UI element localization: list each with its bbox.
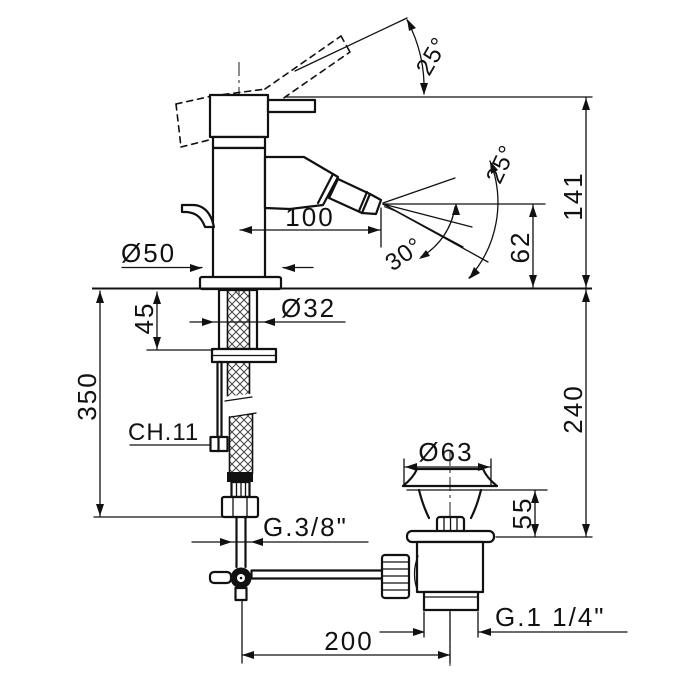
waste-waist [419, 490, 429, 518]
handle-angle-dimension: 25° [285, 18, 592, 97]
waste-thread-label: G.1 1/4" [495, 602, 606, 632]
hose-hex-nut [222, 497, 258, 517]
spray-height-62-label: 62 [505, 231, 535, 264]
depth-240-label: 240 [558, 384, 588, 433]
hose-length-label: 350 [72, 371, 102, 420]
waste-body [417, 542, 483, 592]
faucet-outline [182, 95, 381, 289]
waste-flange [407, 531, 494, 542]
head-ring [213, 137, 265, 148]
lever-handle [268, 100, 315, 112]
waste-thread-band [424, 592, 478, 610]
shank-diameter-label: Ø32 [281, 293, 336, 323]
shank-depth-dimension: 45 [129, 292, 213, 350]
inlet-thread-label: G.3/8" [263, 512, 348, 542]
spray-cone-angle-label: 30° [380, 232, 428, 277]
popup-rod-lever [182, 205, 214, 227]
linkage-stub [210, 572, 231, 583]
flex-hose-lower [230, 414, 253, 473]
rod-wrench-label: CH.11 [128, 419, 199, 446]
drawing-canvas: 25° 25° 30° 100 141 62 240 [0, 0, 700, 700]
flex-hose-upper [228, 290, 250, 349]
horizontal-linkage-rod [252, 571, 384, 579]
popup-rod [218, 362, 222, 437]
technical-drawing-bidet-mixer: 25° 25° 30° 100 141 62 240 [0, 0, 700, 700]
handle-angle-label: 25° [411, 32, 454, 80]
cartridge-head [210, 95, 268, 137]
linkage-tail [236, 588, 247, 600]
waste-height-label: 55 [507, 497, 537, 530]
faucet-column [213, 148, 265, 278]
spout-reach-label: 100 [285, 202, 334, 232]
shank-depth-label: 45 [129, 302, 159, 335]
height-141-label: 141 [558, 171, 588, 220]
rod-wrench-dimension: CH.11 [128, 419, 211, 446]
under-counter-assembly [210, 290, 383, 600]
waste-cap-diameter-label: Ø63 [418, 437, 473, 467]
shank-diameter-dimension: Ø32 [190, 293, 345, 326]
body-diameter-label: Ø50 [121, 238, 176, 268]
spray-tilt-angle-label: 25° [481, 141, 522, 188]
drain-offset-label: 200 [324, 626, 373, 656]
hose-ferrule [227, 472, 253, 482]
popup-waste-assembly [382, 469, 497, 610]
flex-hose-mid [228, 362, 250, 399]
base-escutcheon [200, 277, 281, 289]
waste-thread-dimension: G.1 1/4" [380, 602, 627, 637]
